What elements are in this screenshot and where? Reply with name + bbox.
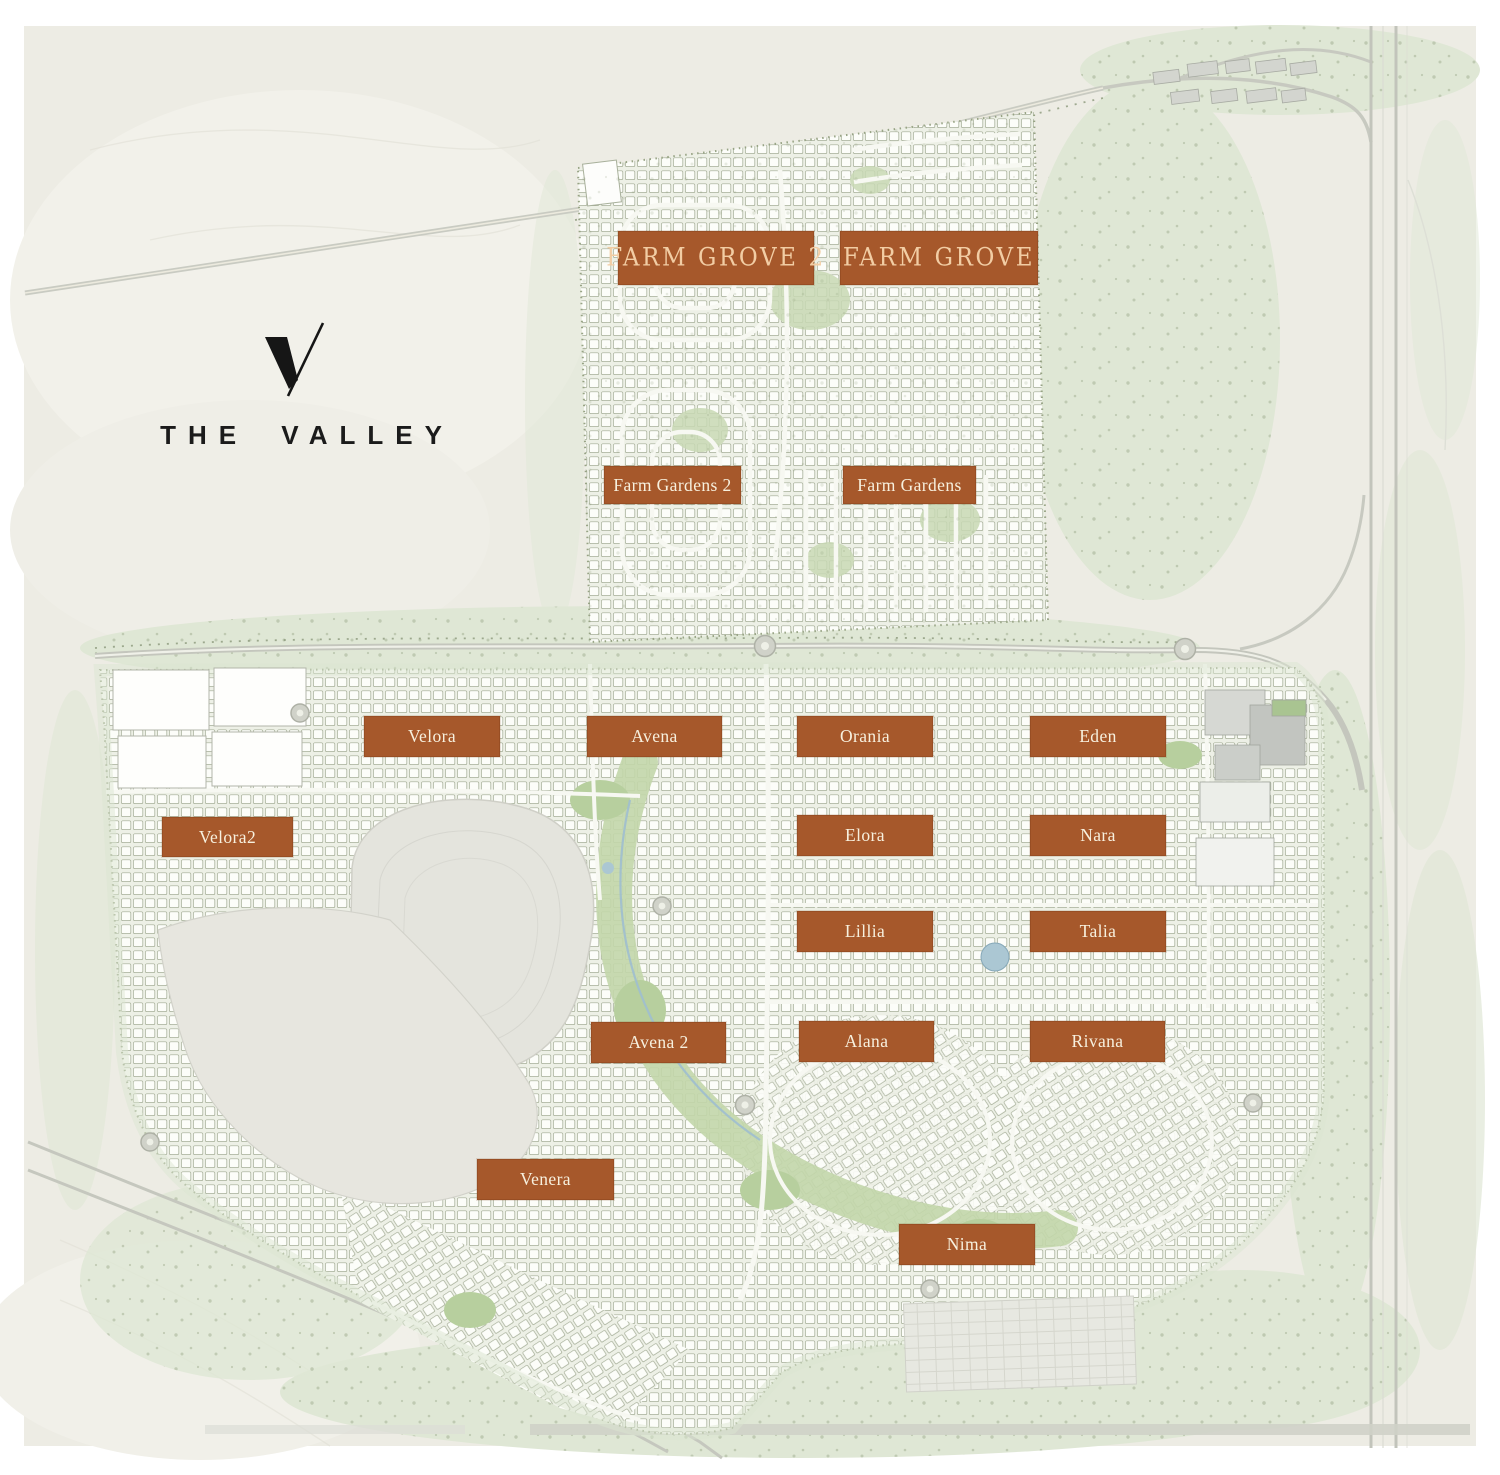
district-label-orania[interactable]: Orania bbox=[797, 716, 933, 757]
district-labels-layer: FARM GROVE 2FARM GROVEFarm Gardens 2Farm… bbox=[0, 0, 1500, 1475]
district-label-farm-gardens[interactable]: Farm Gardens bbox=[843, 466, 976, 504]
district-label-text: Velora bbox=[408, 726, 456, 747]
district-label-rivana[interactable]: Rivana bbox=[1030, 1021, 1165, 1062]
district-label-text: Orania bbox=[840, 726, 890, 747]
district-label-velora2[interactable]: Velora2 bbox=[162, 817, 293, 857]
district-label-text: Rivana bbox=[1072, 1031, 1124, 1052]
district-label-venera[interactable]: Venera bbox=[477, 1159, 614, 1200]
district-label-text: FARM GROVE 2 bbox=[606, 244, 825, 272]
district-label-lillia[interactable]: Lillia bbox=[797, 911, 933, 952]
district-label-avena-2[interactable]: Avena 2 bbox=[591, 1022, 726, 1063]
district-label-text: Farm Gardens bbox=[857, 475, 961, 496]
district-label-avena[interactable]: Avena bbox=[587, 716, 722, 757]
district-label-text: Talia bbox=[1080, 921, 1117, 942]
district-label-farm-gardens-2[interactable]: Farm Gardens 2 bbox=[604, 466, 741, 504]
district-label-text: Avena 2 bbox=[628, 1032, 688, 1053]
district-label-velora[interactable]: Velora bbox=[364, 716, 500, 757]
district-label-farm-grove-2[interactable]: FARM GROVE 2 bbox=[618, 231, 814, 285]
district-label-text: Venera bbox=[520, 1169, 571, 1190]
district-label-text: Eden bbox=[1079, 726, 1117, 747]
district-label-alana[interactable]: Alana bbox=[799, 1021, 934, 1062]
district-label-text: Nara bbox=[1080, 825, 1116, 846]
district-label-text: FARM GROVE bbox=[843, 244, 1035, 272]
district-label-text: Elora bbox=[845, 825, 885, 846]
district-label-text: Avena bbox=[631, 726, 677, 747]
master-plan-page: THE VALLEY FARM GROVE 2FARM GROVEFarm Ga… bbox=[0, 0, 1500, 1475]
district-label-text: Farm Gardens 2 bbox=[613, 475, 731, 496]
district-label-text: Velora2 bbox=[199, 827, 256, 848]
district-label-nima[interactable]: Nima bbox=[899, 1224, 1035, 1265]
district-label-text: Lillia bbox=[845, 921, 885, 942]
district-label-eden[interactable]: Eden bbox=[1030, 716, 1166, 757]
district-label-farm-grove[interactable]: FARM GROVE bbox=[840, 231, 1038, 285]
district-label-text: Alana bbox=[845, 1031, 889, 1052]
district-label-elora[interactable]: Elora bbox=[797, 815, 933, 856]
district-label-talia[interactable]: Talia bbox=[1030, 911, 1166, 952]
district-label-text: Nima bbox=[947, 1234, 987, 1255]
district-label-nara[interactable]: Nara bbox=[1030, 815, 1166, 856]
